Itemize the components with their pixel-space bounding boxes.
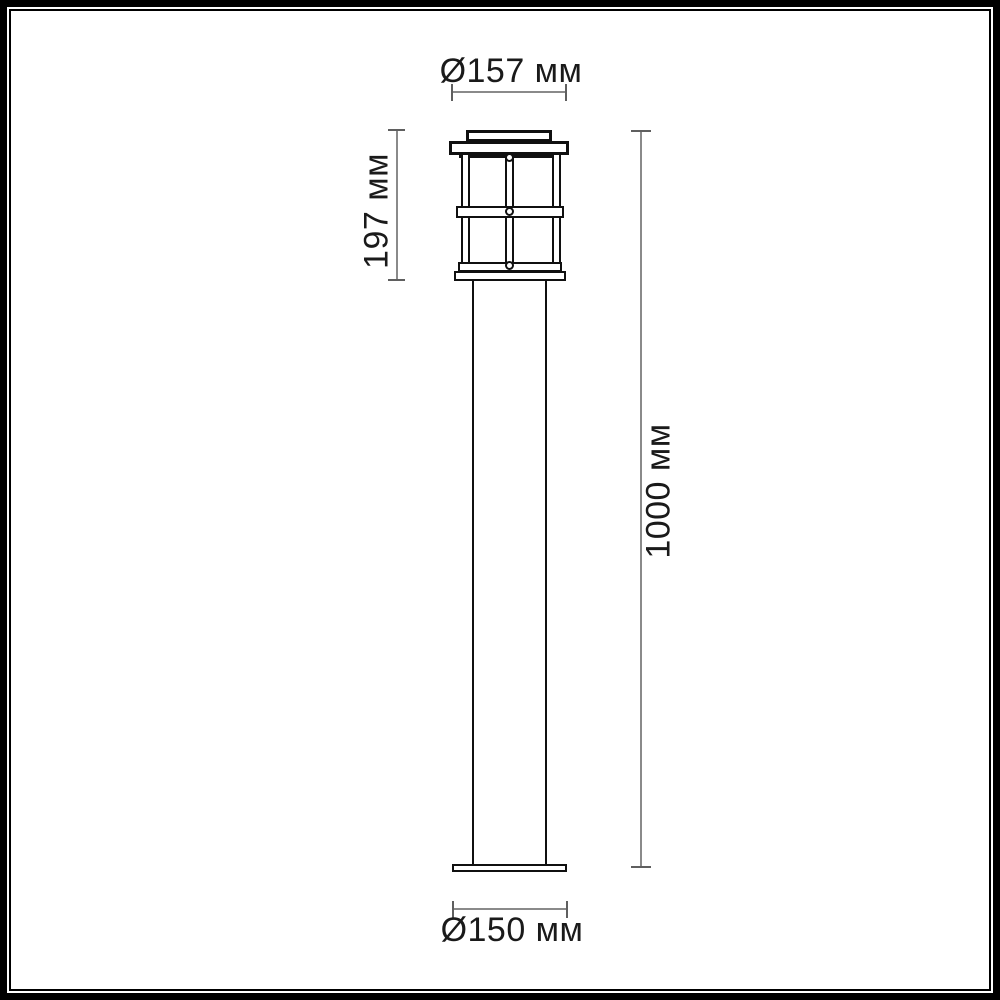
left-dimension-tick-bottom xyxy=(388,279,405,281)
lantern-bottom-plate xyxy=(454,271,566,281)
top-dimension-tick-right xyxy=(565,84,567,101)
lamp-base-plate xyxy=(452,864,567,872)
lantern-rivet-middle xyxy=(505,207,514,216)
left-dimension-tick-top xyxy=(388,129,405,131)
lantern-rivet-bottom xyxy=(505,261,514,270)
diagram-canvas: Ø157 мм 197 мм 1000 мм Ø150 мм xyxy=(0,0,1000,1000)
total-height-label: 1000 мм xyxy=(640,423,677,558)
base-diameter-label: Ø150 мм xyxy=(400,912,624,949)
right-dimension-line xyxy=(640,131,642,868)
lantern-rivet-top xyxy=(505,153,514,162)
top-dimension-tick-left xyxy=(451,84,453,101)
right-dimension-tick-bottom xyxy=(631,866,651,868)
bottom-dimension-line xyxy=(453,908,568,910)
lantern-height-label: 197 мм xyxy=(358,153,395,269)
right-dimension-tick-top xyxy=(631,130,651,132)
lamp-pole xyxy=(472,281,547,864)
top-diameter-label: Ø157 мм xyxy=(399,53,623,90)
left-dimension-line xyxy=(396,130,398,280)
top-dimension-line xyxy=(452,91,567,93)
